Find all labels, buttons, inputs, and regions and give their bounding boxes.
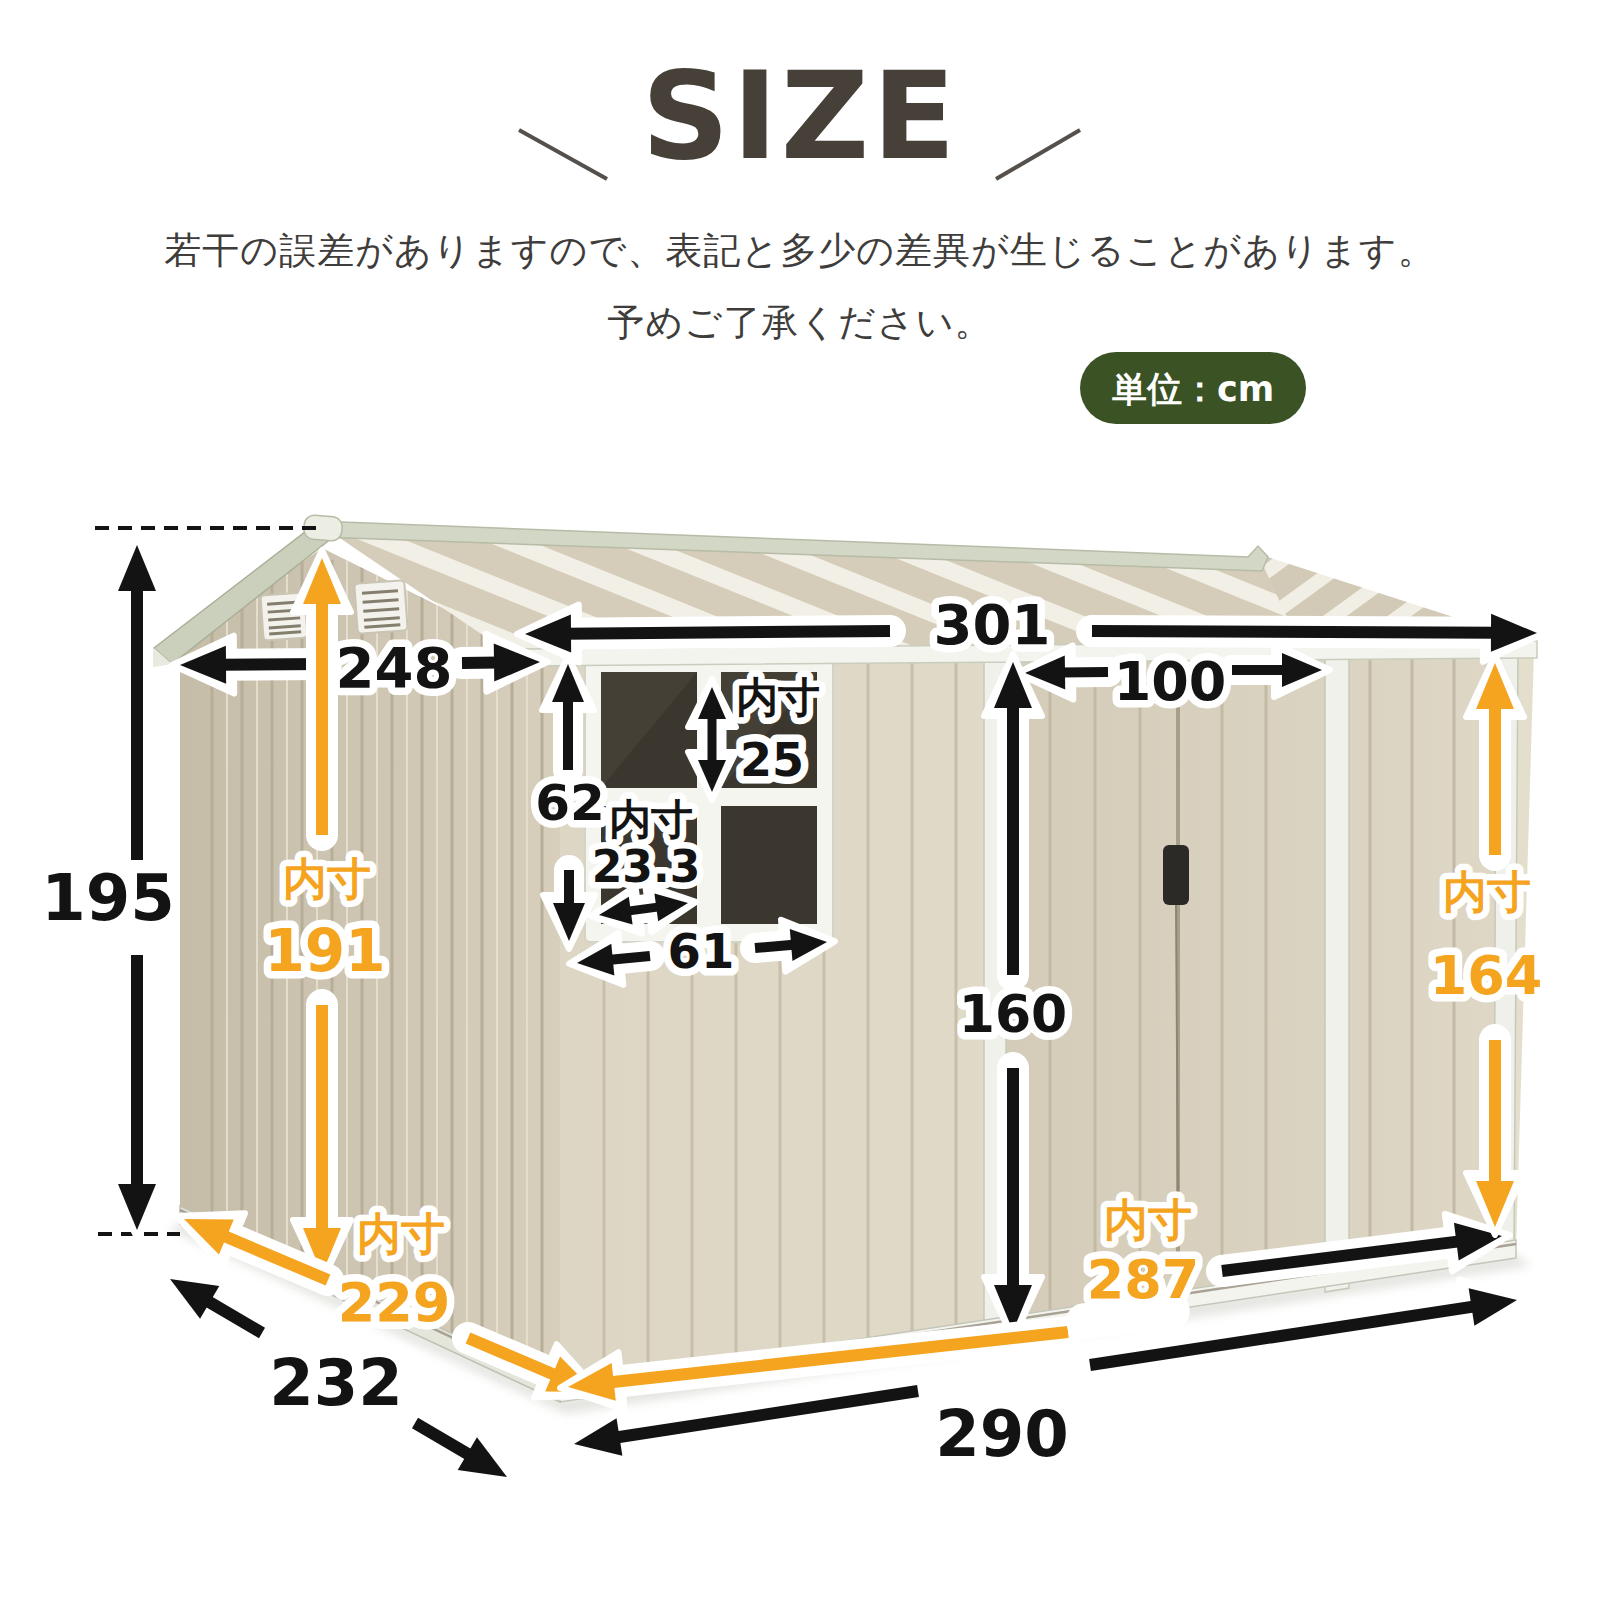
dim-label-window-height: 62 [535,774,605,832]
dim-label-pane-height: 25 [740,733,804,787]
vent-right [354,580,407,633]
dim-label-outer-depth: 232 [269,1346,403,1420]
size-infographic: SIZE 若干の誤差がありますので、表記と多少の差異が生じることがあります。 予… [0,0,1600,1600]
dim-label-inner-height-right: 164 [1430,944,1543,1007]
dim-label-door-height: 160 [959,984,1068,1044]
dim-label-inner-width: 287 [1087,1248,1200,1311]
page-title: SIZE [641,45,958,187]
dim-label-roof-depth: 248 [336,635,453,700]
door-handle [1163,845,1189,905]
sliding-door [1004,650,1496,1332]
dim-arrow-outer-depth-bottom [415,1423,514,1481]
dim-label-pane-width: 23.3 [592,841,701,892]
unit-badge: 単位：cm [1080,352,1306,424]
door-frame-right [1325,653,1349,1292]
window-pane [721,806,817,924]
dim-label-outer-height: 195 [41,861,175,935]
dim-arrow-outer-height-top [108,537,166,860]
dim-label-pane-width-prefix: 内寸 [609,795,693,844]
shed-illustration: SIZE 若干の誤差がありますので、表記と多少の差異が生じることがあります。 予… [0,0,1600,1600]
note-line-2: 予めご了承ください。 [607,301,992,344]
dim-label-door-width: 100 [1114,650,1227,713]
unit-badge-label: 単位：cm [1112,369,1274,409]
note-line-1: 若干の誤差がありますので、表記と多少の差異が生じることがあります。 [164,229,1435,272]
dim-label-window-width: 61 [668,923,735,979]
dim-label-inner-height: 191 [264,917,385,985]
dim-label-roof-width: 301 [934,592,1051,657]
dim-label-inner-height-right-prefix: 内寸 [1443,866,1531,917]
dim-label-inner-height-prefix: 内寸 [283,853,371,904]
dim-arrow-outer-height-bottom [108,955,166,1238]
dim-label-inner-depth-prefix: 内寸 [357,1208,445,1259]
title-slash-right [996,130,1080,179]
dim-label-outer-width: 290 [935,1397,1069,1471]
title-slash-left [519,130,607,179]
dim-label-inner-width-prefix: 内寸 [1104,1194,1192,1245]
dim-arrow-outer-depth-top [163,1275,262,1333]
dim-label-pane-height-prefix: 内寸 [736,673,820,722]
dim-label-inner-depth: 229 [338,1271,451,1334]
